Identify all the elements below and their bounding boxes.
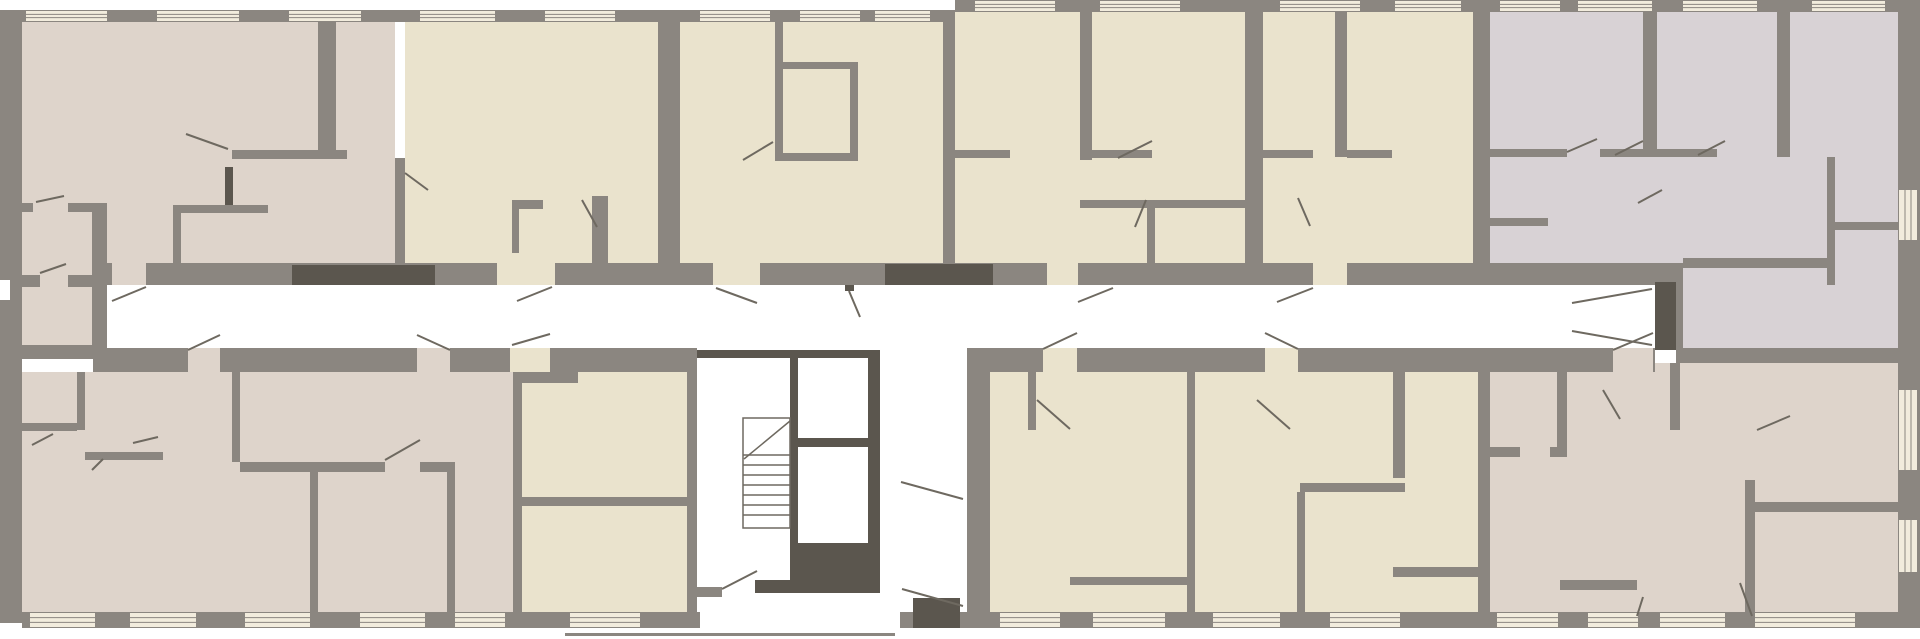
- window: [455, 613, 505, 627]
- door-gap: [40, 275, 68, 287]
- dark-wall: [885, 264, 993, 285]
- wall: [395, 158, 405, 263]
- wall: [1297, 492, 1305, 612]
- wall: [522, 372, 578, 383]
- room-fill: [522, 372, 687, 612]
- wall: [775, 153, 858, 161]
- room-fill: [955, 12, 1245, 263]
- wall: [1478, 348, 1490, 612]
- wall: [1600, 149, 1643, 157]
- wall: [658, 22, 680, 285]
- door-gap: [1520, 447, 1550, 457]
- wall: [687, 348, 697, 612]
- wall: [1670, 363, 1680, 430]
- dark-wall: [225, 167, 233, 205]
- window: [1755, 613, 1855, 627]
- wall: [1827, 157, 1835, 285]
- dark-wall: [697, 350, 880, 358]
- door-gap: [112, 263, 146, 285]
- wall: [1755, 502, 1898, 512]
- room-fill: [1490, 12, 1898, 285]
- wall: [522, 497, 687, 506]
- wall: [1557, 363, 1567, 447]
- wall: [943, 12, 955, 285]
- wall: [173, 205, 181, 263]
- window: [800, 11, 860, 21]
- window: [570, 613, 640, 627]
- window: [1812, 1, 1885, 11]
- window: [30, 613, 95, 627]
- window: [1395, 1, 1461, 11]
- room-fill: [680, 22, 943, 263]
- wall: [1300, 483, 1405, 492]
- wall: [318, 22, 336, 157]
- window: [1683, 1, 1757, 11]
- window: [1588, 613, 1638, 627]
- wall: [1777, 10, 1790, 157]
- wall: [1745, 480, 1755, 612]
- wall: [1080, 200, 1245, 208]
- door-gap: [417, 348, 450, 372]
- door-gap: [713, 263, 760, 285]
- door-gap: [1265, 348, 1298, 372]
- wall: [695, 587, 722, 597]
- window: [1497, 613, 1558, 627]
- floor-plan-svg: [0, 0, 1920, 639]
- door-gap: [1613, 348, 1653, 372]
- wall: [173, 205, 268, 213]
- wall: [592, 196, 608, 263]
- wall: [1490, 218, 1548, 226]
- window: [1500, 1, 1560, 11]
- door-gap: [1047, 263, 1078, 285]
- window: [1280, 1, 1360, 11]
- window: [157, 11, 239, 21]
- door-gap: [385, 462, 420, 472]
- wall: [565, 633, 895, 636]
- wall: [1393, 348, 1405, 478]
- wall: [0, 10, 22, 623]
- wall: [513, 372, 522, 612]
- wall: [1676, 348, 1898, 363]
- room-fill: [22, 372, 513, 612]
- wall: [1263, 150, 1313, 158]
- window: [875, 11, 930, 21]
- wall: [1683, 258, 1827, 268]
- window: [1899, 190, 1917, 240]
- wall: [1245, 12, 1263, 285]
- window: [360, 613, 425, 627]
- wall: [1187, 348, 1195, 612]
- floor-plan: [0, 0, 1920, 639]
- wall: [967, 372, 990, 612]
- wall: [1835, 222, 1898, 230]
- wall: [1473, 10, 1490, 285]
- wall: [1147, 208, 1155, 263]
- window: [1100, 1, 1180, 11]
- wall: [68, 203, 92, 212]
- window: [1578, 1, 1652, 11]
- dark-wall: [790, 543, 880, 593]
- wall: [22, 423, 77, 431]
- dark-wall: [845, 285, 854, 291]
- window: [420, 11, 495, 21]
- wall: [1347, 150, 1392, 158]
- window: [700, 11, 770, 21]
- wall: [775, 22, 783, 160]
- wall: [1676, 285, 1683, 348]
- dark-wall: [798, 438, 868, 447]
- dark-wall: [1655, 282, 1676, 350]
- window: [130, 613, 196, 627]
- wall: [447, 462, 455, 612]
- window: [1899, 520, 1917, 572]
- wall: [77, 372, 85, 430]
- wall: [512, 200, 543, 209]
- window: [1660, 613, 1725, 627]
- door-gap: [1313, 263, 1347, 285]
- wall: [1490, 149, 1567, 157]
- wall: [1560, 580, 1637, 590]
- dark-wall: [292, 265, 435, 285]
- room-fill: [1263, 12, 1473, 263]
- door-gap: [1043, 348, 1077, 372]
- stairs-layer: [743, 418, 790, 528]
- wall: [240, 462, 455, 472]
- window: [1213, 613, 1280, 627]
- door-gap: [33, 203, 60, 212]
- window: [1330, 613, 1400, 627]
- wall: [93, 348, 697, 372]
- wall: [1080, 12, 1092, 160]
- wall: [1070, 577, 1187, 585]
- door-gap: [497, 263, 555, 285]
- wall: [1393, 567, 1478, 577]
- door-gap: [510, 348, 550, 372]
- door-gap: [0, 280, 10, 300]
- door-gap: [188, 348, 220, 372]
- wall: [1335, 10, 1347, 157]
- room-fill: [1490, 363, 1898, 612]
- window: [26, 11, 107, 21]
- wall: [310, 472, 318, 612]
- wall: [850, 62, 858, 160]
- room-fill: [1683, 285, 1898, 348]
- window: [1899, 390, 1917, 470]
- wall: [955, 150, 1010, 158]
- wall: [232, 150, 347, 159]
- wall: [1643, 10, 1657, 157]
- room-fill: [990, 372, 1187, 612]
- window: [289, 11, 361, 21]
- window: [245, 613, 310, 627]
- wall: [783, 62, 858, 69]
- room-fill: [405, 22, 658, 263]
- stairwell: [743, 418, 790, 528]
- window: [545, 11, 615, 21]
- wall: [232, 372, 240, 462]
- window: [1093, 613, 1165, 627]
- window: [975, 1, 1055, 11]
- wall: [1028, 372, 1036, 430]
- dark-wall: [755, 580, 790, 593]
- window: [1000, 613, 1060, 627]
- wall: [0, 203, 33, 212]
- wall: [85, 452, 163, 460]
